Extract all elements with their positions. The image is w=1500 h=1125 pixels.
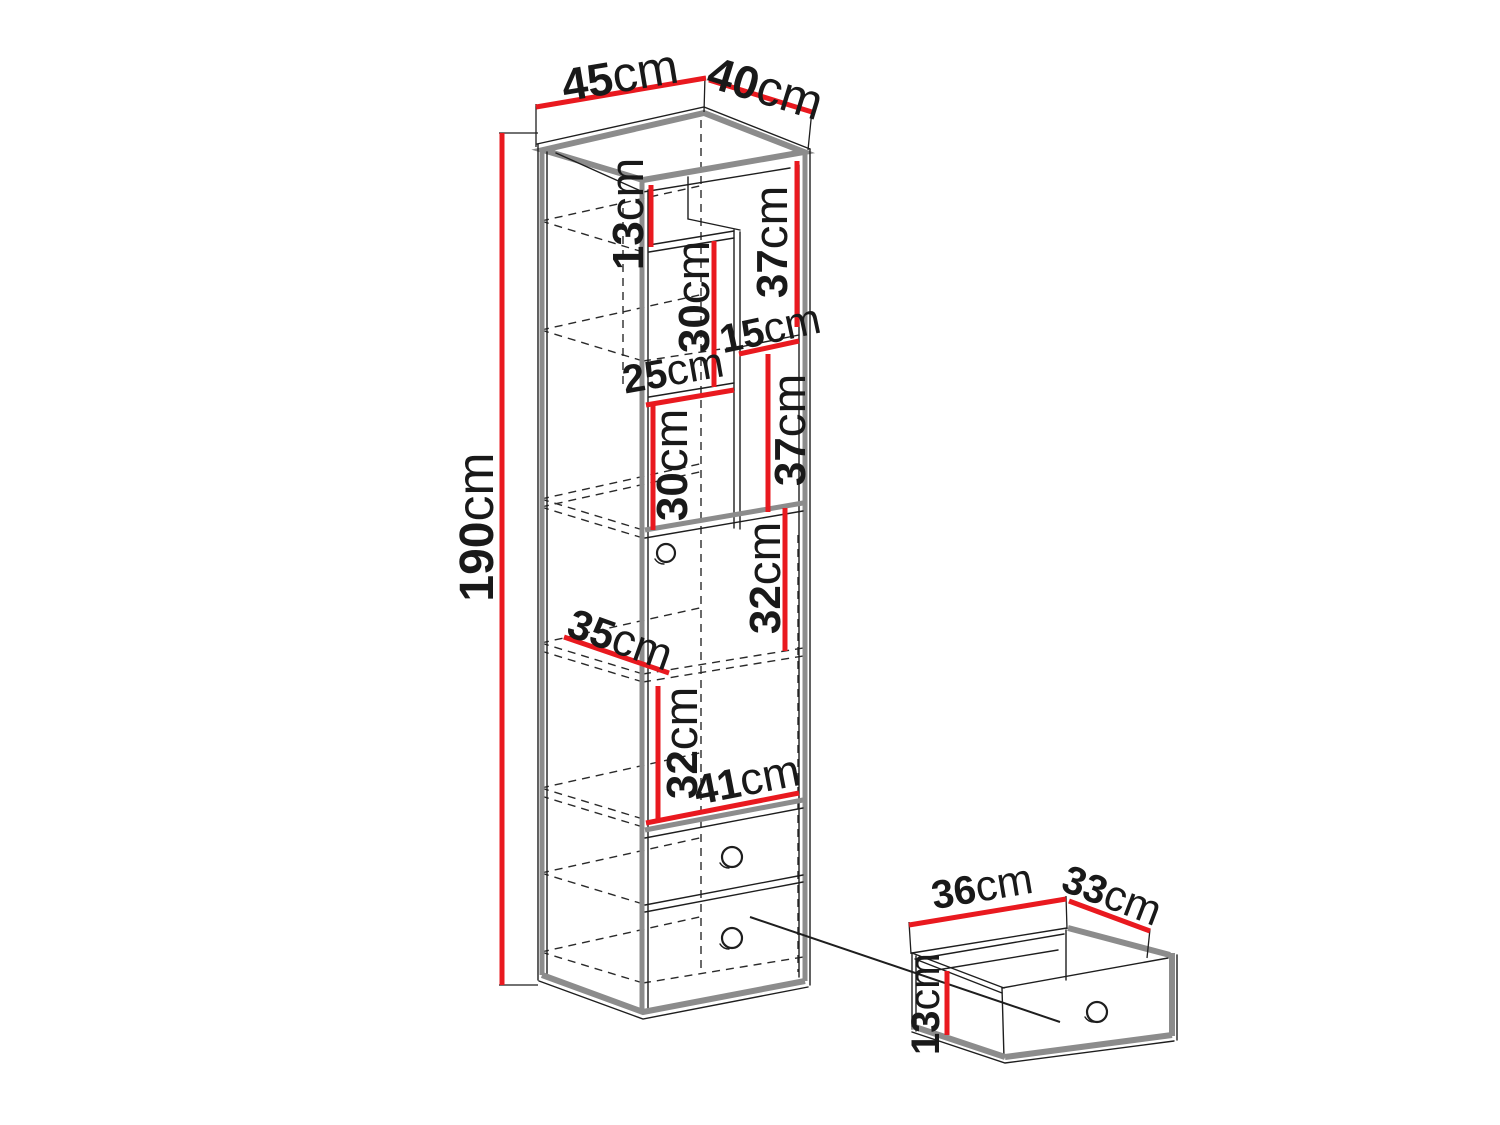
dim-label-right-upper: 37cm	[745, 186, 798, 298]
dim-label-cabinet-width: 45cm	[557, 38, 682, 113]
dim-label-inner-depth: 35cm	[561, 597, 679, 681]
furniture-dimension-diagram: 45cm 40cm 190cm 13cm 37cm 30cm 15cm 25cm…	[0, 0, 1500, 1125]
drawer-knob-upper	[720, 847, 742, 868]
dim-label-drawer-width: 36cm	[928, 855, 1037, 919]
drawer-knob-lower	[720, 928, 742, 949]
dim-label-door-upper: 32cm	[738, 522, 791, 634]
cabinet-bottom	[539, 975, 808, 1019]
door-knob	[655, 544, 675, 564]
dim-label-top-gap: 13cm	[601, 158, 654, 270]
cabinet-top	[537, 107, 810, 192]
dim-label-niche-upper: 30cm	[667, 241, 720, 353]
dim-label-niche-width: 15cm	[715, 295, 825, 363]
dim-label-right-lower: 37cm	[763, 374, 816, 486]
dim-label-drawer-depth: 33cm	[1056, 854, 1168, 935]
dim-label-cabinet-height: 190cm	[446, 452, 504, 601]
dim-label-niche-lower: 30cm	[645, 409, 698, 521]
diagram-canvas: 45cm 40cm 190cm 13cm 37cm 30cm 15cm 25cm…	[0, 0, 1500, 1125]
dim-label-drawer-height: 13cm	[901, 953, 949, 1055]
detail-drawer-knob	[1085, 1002, 1107, 1022]
